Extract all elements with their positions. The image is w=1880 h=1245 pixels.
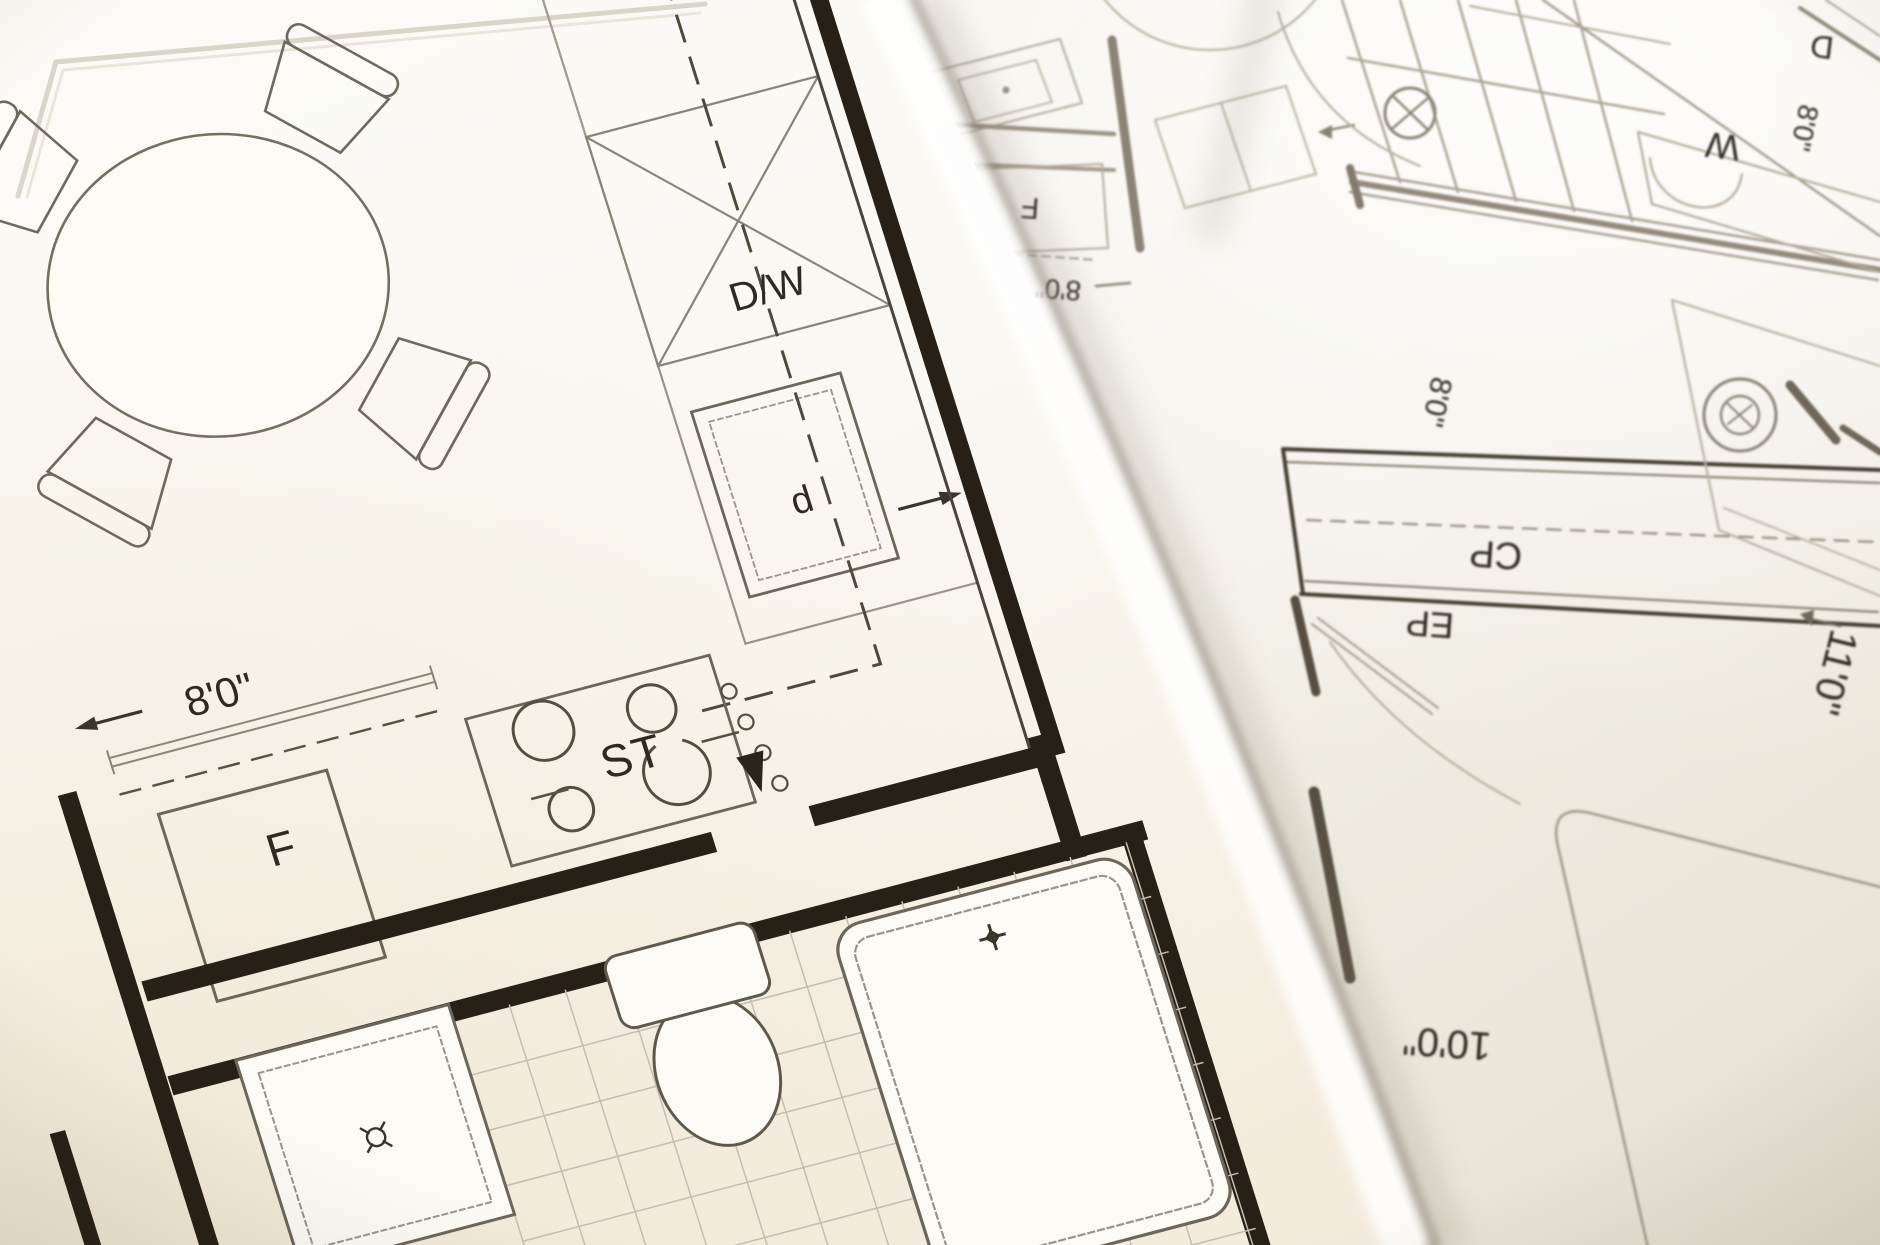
- photo-of-blueprints: CP EP W D F 8'0" 8'0" 8'0" 11'0" 10'0": [0, 0, 1880, 1245]
- blueprint-photo-canvas: CP EP W D F 8'0" 8'0" 8'0" 11'0" 10'0": [0, 0, 1880, 1245]
- vignette: [0, 0, 1880, 1245]
